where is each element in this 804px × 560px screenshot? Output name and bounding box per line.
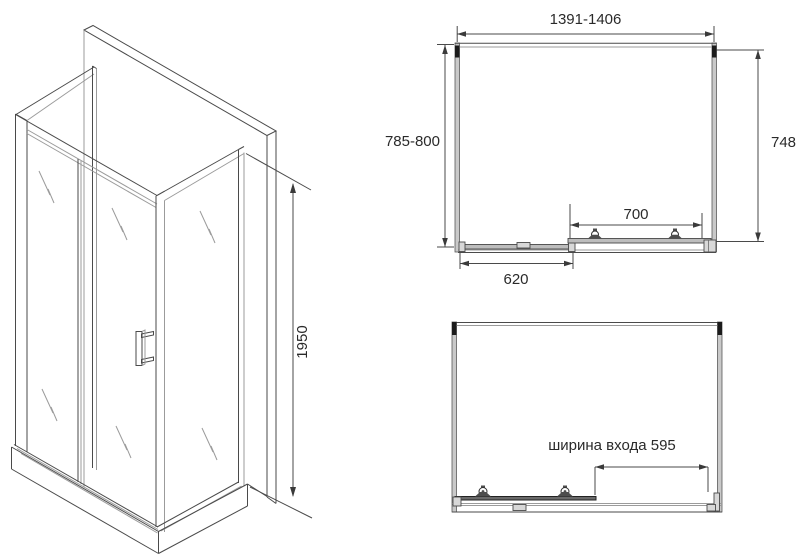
right-wall-profile <box>718 322 723 512</box>
roller-left <box>475 486 491 497</box>
door-end-bracket <box>704 240 716 252</box>
left-wall-profile <box>455 43 460 252</box>
sliding-door-open-plan <box>455 497 596 501</box>
door-handle <box>136 330 154 366</box>
front-sliding-doors <box>16 115 165 533</box>
plan-top-outline <box>455 43 717 252</box>
roller-right <box>668 229 682 239</box>
dim-entrance-width: ширина входа 595 <box>548 437 708 495</box>
fixed-panel-label: 620 <box>503 271 528 288</box>
dim-fixed-panel: 620 <box>460 253 573 289</box>
left-wall-profile <box>452 322 457 512</box>
plan-view-entrance: ширина входа 595 <box>370 290 804 560</box>
glass-reflection-marks <box>39 171 217 460</box>
technical-drawing-canvas: 1950 <box>0 0 804 560</box>
dim-depth-inner: 748 <box>717 50 797 242</box>
entrance-width-label: ширина входа 595 <box>548 437 676 454</box>
dim-width-range: 1391-1406 <box>457 11 714 42</box>
door-width-label: 700 <box>623 206 648 223</box>
height-dim-label: 1950 <box>294 325 311 358</box>
depth-range-label: 785-800 <box>385 133 440 150</box>
panel-connector <box>517 243 530 249</box>
roller-right <box>557 486 573 497</box>
iso-view-shower-enclosure: 1950 <box>0 0 340 560</box>
back-wall-panel <box>84 26 276 504</box>
right-side-panel <box>157 147 244 532</box>
dim-height-1950: 1950 <box>246 154 312 519</box>
sliding-door-plan <box>568 239 711 244</box>
plan-bottom-track-assembly <box>452 486 722 513</box>
dim-door-width: 700 <box>570 204 702 238</box>
track-end-block <box>453 497 461 506</box>
depth-inner-label: 748 <box>771 134 796 151</box>
right-wall-profile <box>712 43 717 252</box>
plan-bottom-outline <box>452 322 722 512</box>
plan-top-track-assembly <box>458 229 716 253</box>
dim-depth-range: 785-800 <box>385 45 454 248</box>
roller-left <box>588 229 602 239</box>
shower-tray <box>12 445 268 554</box>
panel-connector <box>513 505 526 511</box>
plan-view-top: 1391-1406 785-800 748 700 <box>370 0 804 290</box>
width-range-label: 1391-1406 <box>550 11 622 28</box>
